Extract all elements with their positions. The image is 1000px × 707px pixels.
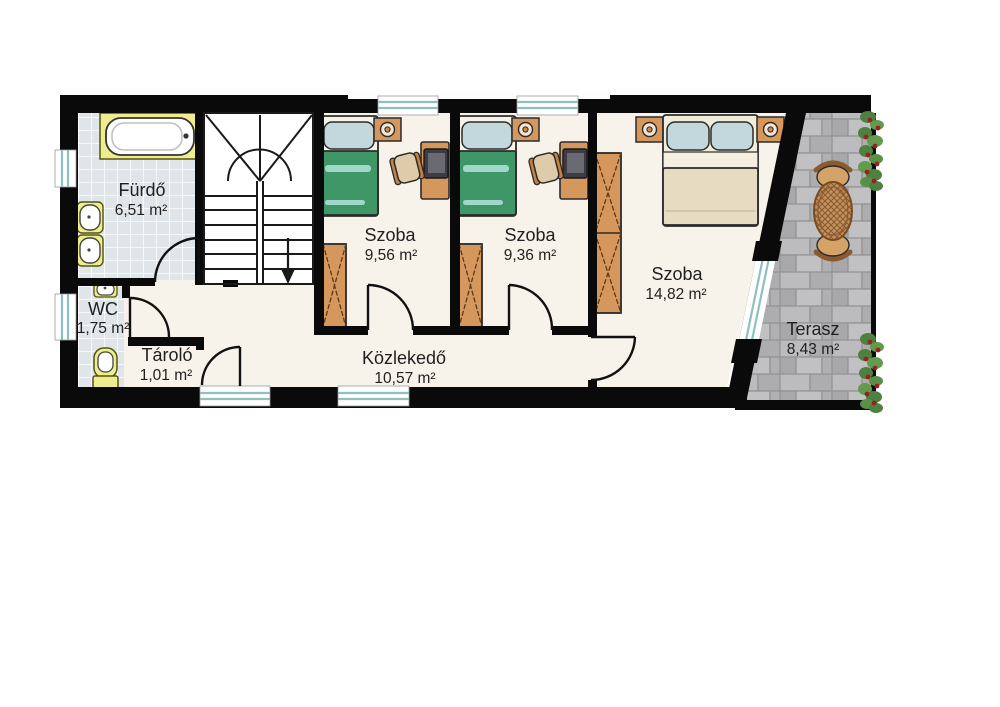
floor-plan-canvas: Fürdő 6,51 m² WC 1,75 m² Tároló 1,01 m² … xyxy=(0,0,1000,707)
nightstand xyxy=(512,118,539,141)
wall-room3-stub xyxy=(588,380,597,390)
label-wc-name: WC xyxy=(88,299,118,319)
desk-with-computer xyxy=(560,142,588,199)
wall-left xyxy=(60,95,78,408)
window xyxy=(517,96,578,115)
label-room1-name: Szoba xyxy=(364,225,416,245)
label-room2-name: Szoba xyxy=(504,225,556,245)
single-bed xyxy=(320,116,378,216)
wall-wc-stub xyxy=(122,286,130,298)
label-bathroom-name: Fürdő xyxy=(118,180,165,200)
wardrobe xyxy=(595,153,621,313)
sink-icon xyxy=(77,235,103,266)
stairwell-floor xyxy=(204,113,313,284)
wall-room2-bottom-left xyxy=(460,326,509,335)
nightstand xyxy=(757,117,784,142)
wall-room1-bottom-right xyxy=(413,326,450,335)
window xyxy=(200,386,270,406)
wardrobe xyxy=(459,244,482,327)
terrace-table xyxy=(814,182,852,240)
window xyxy=(378,96,438,115)
label-wc-area: 1,75 m² xyxy=(77,320,130,337)
wall-bathroom-bottom xyxy=(78,278,155,286)
window xyxy=(55,294,76,340)
label-room1-area: 9,56 m² xyxy=(365,247,418,264)
floor-plan: Fürdő 6,51 m² WC 1,75 m² Tároló 1,01 m² … xyxy=(0,0,1000,707)
label-storage-area: 1,01 m² xyxy=(140,367,193,384)
bathtub-icon xyxy=(100,113,200,159)
wall-storage-stub xyxy=(196,346,204,350)
wall-room2-bottom-right xyxy=(552,326,588,335)
wall-stairs-room1 xyxy=(314,113,324,335)
label-hallway-area: 10,57 m² xyxy=(374,370,435,387)
wall-room1-bottom-left xyxy=(324,326,368,335)
label-bathroom-area: 6,51 m² xyxy=(115,202,168,219)
label-room3-name: Szoba xyxy=(651,264,703,284)
wall-room2-room3 xyxy=(588,113,597,337)
wall-terrace-bottom xyxy=(735,400,877,410)
label-terrace-area: 8,43 m² xyxy=(787,341,840,358)
desk-with-computer xyxy=(421,142,449,199)
label-room3-area: 14,82 m² xyxy=(645,286,706,303)
label-hallway-name: Közlekedő xyxy=(362,348,446,368)
label-room2-area: 9,36 m² xyxy=(504,247,557,264)
sink-icon xyxy=(77,202,103,233)
window xyxy=(338,386,409,406)
toilet-icon xyxy=(93,348,118,389)
window xyxy=(55,150,76,187)
label-terrace-name: Terasz xyxy=(786,319,839,339)
nightstand xyxy=(374,118,401,141)
double-bed xyxy=(663,115,758,226)
nightstand xyxy=(636,117,663,142)
wardrobe xyxy=(323,244,346,327)
wall-room1-room2 xyxy=(450,113,460,335)
single-bed xyxy=(458,116,516,216)
label-storage-name: Tároló xyxy=(141,345,192,365)
